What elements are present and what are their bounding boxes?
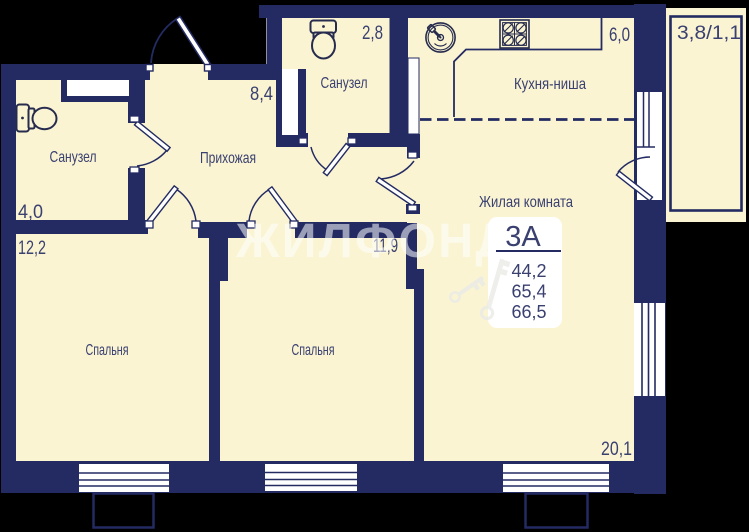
svg-text:Санузел: Санузел [50, 149, 97, 166]
svg-text:Прихожая: Прихожая [200, 150, 256, 167]
svg-text:Санузел: Санузел [321, 75, 368, 92]
svg-text:3,8/1,1: 3,8/1,1 [677, 23, 741, 44]
svg-text:66,5: 66,5 [511, 302, 546, 322]
svg-text:44,2: 44,2 [511, 261, 546, 281]
svg-text:Кухня-ниша: Кухня-ниша [514, 76, 586, 93]
svg-text:6,0: 6,0 [609, 25, 630, 46]
svg-text:Спальня: Спальня [86, 342, 129, 359]
svg-text:3А: 3А [505, 221, 541, 253]
svg-text:4,0: 4,0 [18, 202, 43, 223]
svg-text:20,1: 20,1 [601, 439, 632, 460]
svg-text:2,8: 2,8 [362, 23, 383, 44]
svg-text:Жилая комната: Жилая комната [479, 194, 573, 211]
svg-text:12,2: 12,2 [18, 238, 46, 259]
svg-text:ЖИЛФОНД: ЖИЛФОНД [235, 215, 512, 268]
svg-text:65,4: 65,4 [511, 282, 546, 302]
svg-text:Спальня: Спальня [292, 342, 335, 359]
svg-text:8,4: 8,4 [250, 84, 273, 105]
